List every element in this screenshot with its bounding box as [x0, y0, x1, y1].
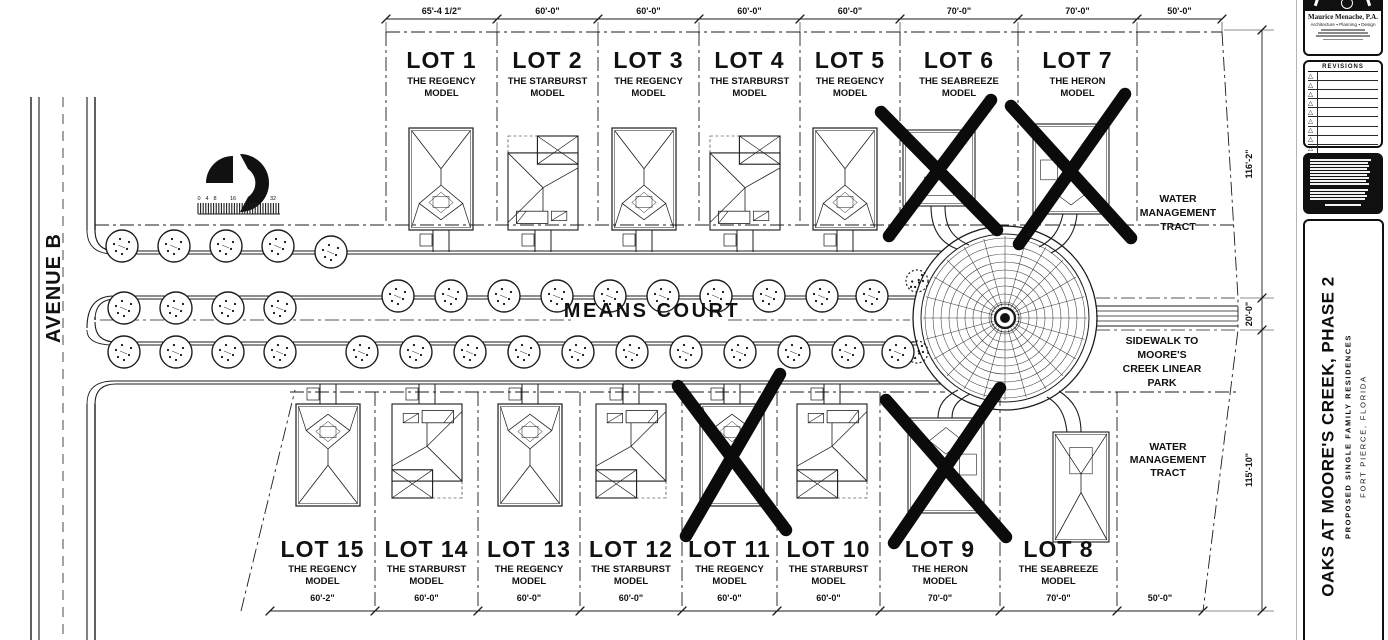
plan-circle: [413, 344, 415, 346]
plan-circle: [225, 253, 227, 255]
plan-circle: [746, 347, 748, 349]
tree: [562, 336, 594, 368]
lot-model: THE REGENCY: [407, 76, 476, 87]
lot-model: THE STARBURST: [387, 564, 467, 575]
dim-label-bottom: 60'-0": [517, 593, 541, 603]
lot-number: LOT 15: [281, 536, 365, 562]
plan-circle: [821, 303, 823, 305]
plan-circle: [173, 253, 175, 255]
sidewalk-label: CREEK LINEAR: [1123, 363, 1202, 375]
water-tract-label: TRACT: [1150, 467, 1186, 479]
plan-circle: [798, 354, 800, 356]
plan-circle: [760, 293, 762, 295]
tree: [264, 336, 296, 368]
lot-model: MODEL: [811, 576, 846, 587]
house-plan: [392, 404, 462, 498]
plan-path: [316, 421, 340, 441]
plan-circle: [739, 359, 741, 361]
plan-circle: [407, 349, 409, 351]
tree: [778, 336, 810, 368]
plan-line: [501, 407, 509, 431]
lot-number: LOT 12: [589, 536, 673, 562]
lot-model: MODEL: [1060, 88, 1095, 99]
revision-delta-icon: △: [1308, 99, 1313, 107]
plan-circle: [361, 359, 363, 361]
plan-line: [797, 446, 832, 466]
plan-circle: [625, 356, 627, 358]
plan-circle: [778, 336, 810, 368]
plan-circle: [395, 288, 397, 290]
plan-line: [797, 484, 817, 498]
plan-circle: [400, 336, 432, 368]
dim-label-bottom: 50'-0": [1148, 593, 1172, 603]
plan-line: [299, 407, 307, 431]
plan-circle: [654, 293, 656, 295]
dim-label-bottom: 60'-0": [816, 593, 840, 603]
plan-path: [419, 185, 463, 220]
plan-circle: [173, 300, 175, 302]
plan-circle: [508, 298, 510, 300]
plan-line: [1081, 493, 1107, 541]
plan-circle: [284, 310, 286, 312]
driveway-walk: [824, 234, 836, 246]
revisions-rows: △△△△△△△△△: [1308, 72, 1378, 154]
plan-line: [816, 203, 824, 227]
plan-circle: [902, 354, 904, 356]
dim-label-top: 50'-0": [1167, 6, 1191, 16]
plan-circle: [115, 250, 117, 252]
plan-line: [808, 413, 823, 422]
water-tract-label: TRACT: [1160, 221, 1196, 233]
plan-circle: [115, 305, 117, 307]
plan-line: [551, 211, 566, 220]
notes-text-line: [1310, 168, 1367, 170]
plan-circle: [775, 291, 777, 293]
tree: [262, 230, 294, 262]
plan-line: [615, 203, 623, 227]
lot-model: THE REGENCY: [495, 564, 564, 575]
bush-dot: [911, 280, 913, 282]
plan-circle: [607, 288, 609, 290]
plan-line: [412, 484, 432, 498]
lot-model: THE STARBURST: [710, 76, 790, 87]
lot-model: MODEL: [409, 576, 444, 587]
plan-circle: [346, 336, 378, 368]
plan-circle: [397, 303, 399, 305]
plan-line: [817, 470, 837, 484]
house-plan: [710, 136, 780, 230]
plan-circle: [277, 300, 279, 302]
plan-circle: [521, 344, 523, 346]
driveway-curve: [1047, 397, 1067, 432]
scale-bar-number: 4: [205, 196, 208, 202]
plan-circle: [889, 349, 891, 351]
plan-circle: [279, 359, 281, 361]
plan-circle: [277, 344, 279, 346]
bush-dot: [921, 345, 923, 347]
plan-circle: [508, 336, 540, 368]
plan-circle: [108, 292, 140, 324]
strike-x-mark: [886, 388, 1006, 543]
cul-de-sac-spoke: [984, 239, 1002, 307]
plan-line: [631, 412, 666, 447]
sidewalk-label: SIDEWALK TO: [1126, 335, 1199, 347]
plan-circle: [467, 344, 469, 346]
architect-card: Maurice Menache, P.A. Architecture ▪ Pla…: [1303, 0, 1383, 56]
tree: [212, 292, 244, 324]
plan-rect: [433, 481, 462, 498]
tree: [264, 292, 296, 324]
driveway-curve: [938, 390, 958, 418]
site-plan-drawing: 65'-4 1/2"60'-0"60'-0"60'-0"60'-0"70'-0"…: [0, 0, 1300, 640]
driveway-walk: [623, 234, 635, 246]
plan-circle: [871, 303, 873, 305]
plan-line: [1055, 434, 1081, 474]
tree: [508, 336, 540, 368]
plan-circle: [669, 291, 671, 293]
plan-circle: [219, 349, 221, 351]
plan-line: [616, 484, 636, 498]
plan-circle: [616, 291, 618, 293]
dim-label-bottom: 70'-0": [1046, 593, 1070, 603]
lot-model: THE REGENCY: [695, 564, 764, 575]
cul-de-sac-spoke: [1008, 330, 1026, 398]
revision-row: △: [1308, 127, 1378, 136]
revision-row: △: [1308, 108, 1378, 117]
house-plan: [296, 404, 360, 506]
plan-circle: [130, 303, 132, 305]
plan-line: [607, 413, 622, 422]
plan-circle: [180, 310, 182, 312]
plan-circle: [865, 300, 867, 302]
plan-circle: [273, 312, 275, 314]
plan-circle: [766, 288, 768, 290]
revision-delta-icon: △: [1308, 117, 1313, 125]
plan-circle: [692, 347, 694, 349]
notes-text-line: [1310, 183, 1369, 185]
plan-circle: [175, 359, 177, 361]
tree: [158, 230, 190, 262]
plan-line: [403, 413, 418, 422]
plan-circle: [731, 349, 733, 351]
plan-line: [616, 470, 636, 484]
plan-circle: [847, 359, 849, 361]
dim-label-bottom: 70'-0": [928, 593, 952, 603]
plan-circle: [391, 300, 393, 302]
plan-line: [350, 407, 358, 431]
plan-line: [745, 168, 780, 188]
lot-model: MODEL: [833, 88, 868, 99]
tree: [882, 336, 914, 368]
plan-line: [537, 136, 557, 150]
tree: [160, 336, 192, 368]
bush-dot: [918, 279, 920, 281]
plan-circle: [219, 305, 221, 307]
plan-circle: [442, 293, 444, 295]
plan-line: [760, 136, 780, 150]
street-name-means-court: MEANS COURT: [564, 300, 740, 322]
tree: [108, 292, 140, 324]
lot-model: MODEL: [424, 88, 459, 99]
plan-circle: [121, 253, 123, 255]
cul-de-sac-spoke: [1011, 328, 1046, 389]
plan-circle: [219, 250, 221, 252]
house-plan: [508, 136, 578, 230]
tree: [616, 336, 648, 368]
cul-de-sac-spoke: [964, 247, 999, 308]
plan-circle: [455, 298, 457, 300]
plan-circle: [169, 356, 171, 358]
lot-number: LOT 4: [714, 47, 784, 73]
plan-circle: [785, 349, 787, 351]
plan-line: [552, 407, 560, 431]
plan-circle: [554, 288, 556, 290]
tree: [346, 336, 378, 368]
revisions-card: REVISIONS △△△△△△△△△: [1303, 60, 1383, 148]
house-plan: [1053, 432, 1109, 542]
tree: [454, 336, 486, 368]
plan-circle: [463, 356, 465, 358]
plan-circle: [234, 303, 236, 305]
revision-delta-icon: △: [1308, 108, 1313, 116]
plan-line: [501, 465, 531, 503]
plan-circle: [571, 356, 573, 358]
water-tract-label: WATER: [1159, 193, 1197, 205]
plan-circle: [488, 280, 520, 312]
plan-circle: [165, 243, 167, 245]
plan-line: [508, 188, 543, 223]
plan-circle: [623, 349, 625, 351]
plan-circle: [115, 349, 117, 351]
lot-model: MODEL: [305, 576, 340, 587]
plan-circle: [225, 300, 227, 302]
lot-model: THE REGENCY: [288, 564, 357, 575]
plan-circle: [221, 312, 223, 314]
plan-rect: [1070, 447, 1092, 473]
notes-text-line: [1310, 162, 1368, 164]
plan-circle: [264, 292, 296, 324]
lot-number: LOT 2: [512, 47, 582, 73]
revision-delta-icon: △: [1308, 144, 1313, 152]
plan-line: [463, 203, 471, 227]
notes-text-line: [1310, 165, 1369, 167]
water-tract-label: MANAGEMENT: [1140, 207, 1217, 219]
plan-circle: [461, 349, 463, 351]
plan-circle: [126, 248, 128, 250]
plan-circle: [269, 243, 271, 245]
plan-line: [392, 446, 427, 466]
tree: [108, 336, 140, 368]
plan-circle: [685, 359, 687, 361]
lot-model: MODEL: [614, 576, 649, 587]
general-notes-card: [1303, 153, 1383, 214]
plan-circle: [404, 291, 406, 293]
plan-circle: [773, 298, 775, 300]
plan-circle: [584, 347, 586, 349]
plan-circle: [324, 256, 326, 258]
project-title: OAKS AT MOORE'S CREEK, PHASE 2: [1319, 276, 1339, 596]
dim-label-bottom: 60'-0": [717, 593, 741, 603]
plan-circle: [121, 344, 123, 346]
scale-bar-number: 32: [270, 196, 276, 202]
plan-circle: [562, 336, 594, 368]
plan-line: [666, 203, 674, 227]
scale-bar-number: 0: [197, 196, 200, 202]
bush-dot: [918, 352, 920, 354]
revision-row: △: [1308, 81, 1378, 90]
plan-circle: [212, 292, 244, 324]
plan-circle: [828, 291, 830, 293]
plan-line: [1055, 493, 1081, 541]
driveway-walk: [610, 388, 622, 400]
plan-circle: [180, 241, 182, 243]
plan-line: [427, 412, 462, 447]
plan-circle: [690, 354, 692, 356]
bush-dot: [922, 280, 924, 282]
plan-circle: [167, 349, 169, 351]
tree: [488, 280, 520, 312]
plan-circle: [128, 354, 130, 356]
dim-label-top: 60'-0": [737, 6, 761, 16]
plan-line: [817, 484, 837, 498]
revision-row: △: [1308, 99, 1378, 108]
driveway-walk: [724, 234, 736, 246]
plan-circle: [277, 253, 279, 255]
revision-row: △: [1308, 90, 1378, 99]
tree: [832, 336, 864, 368]
plan-circle: [638, 347, 640, 349]
plan-circle: [724, 336, 756, 368]
plan-circle: [262, 230, 294, 262]
plan-circle: [435, 280, 467, 312]
cul-de-sac-spoke: [947, 326, 996, 375]
plan-circle: [223, 238, 225, 240]
bush-dot: [918, 281, 920, 283]
tree: [106, 230, 138, 262]
plan-circle: [845, 344, 847, 346]
dim-label-right: 116'-2": [1244, 150, 1254, 179]
plan-circle: [117, 356, 119, 358]
plan-circle: [117, 312, 119, 314]
plan-line: [328, 465, 358, 503]
plan-path: [622, 185, 666, 220]
street-name-avenue-b: AVENUE B: [43, 233, 65, 343]
plan-circle: [221, 356, 223, 358]
strike-x-mark: [678, 374, 786, 536]
strike-x-mark: [1011, 94, 1131, 244]
driveway-walk: [420, 234, 432, 246]
plan-circle: [173, 344, 175, 346]
plan-circle: [897, 359, 899, 361]
architect-name: Maurice Menache, P.A.: [1305, 13, 1381, 21]
notes-text-line: [1310, 195, 1367, 197]
dim-label-top: 60'-0": [838, 6, 862, 16]
bush-dot: [918, 350, 920, 352]
driveway-walk: [307, 388, 319, 400]
plan-circle: [158, 230, 190, 262]
plan-circle: [550, 300, 552, 302]
plan-line: [1081, 434, 1107, 474]
plan-circle: [330, 259, 332, 261]
plan-circle: [167, 305, 169, 307]
plan-line: [441, 131, 471, 169]
plan-circle: [286, 347, 288, 349]
plan-circle: [722, 291, 724, 293]
plan-circle: [575, 344, 577, 346]
house-plan: [797, 404, 867, 498]
tree: [160, 292, 192, 324]
plan-circle: [683, 344, 685, 346]
plan-path: [306, 414, 350, 449]
plan-circle: [577, 359, 579, 361]
driveway-walk: [406, 388, 418, 400]
plan-circle: [878, 291, 880, 293]
plan-circle: [232, 241, 234, 243]
plan-circle: [171, 238, 173, 240]
plan-circle: [569, 349, 571, 351]
plan-rect: [636, 196, 652, 207]
bush-dot: [910, 286, 912, 288]
plan-circle: [169, 312, 171, 314]
plan-path: [833, 192, 857, 212]
plan-line: [644, 131, 674, 169]
notes-text-line: [1325, 204, 1361, 206]
lot-number: LOT 11: [688, 536, 771, 562]
plan-circle: [160, 292, 192, 324]
plan-path: [429, 192, 453, 212]
plan-line: [412, 131, 442, 169]
plan-circle: [762, 300, 764, 302]
plan-circle: [904, 347, 906, 349]
plan-circle: [328, 244, 330, 246]
tree: [753, 280, 785, 312]
plan-circle: [791, 344, 793, 346]
plan-circle: [753, 280, 785, 312]
plan-rect: [838, 481, 867, 498]
plan-circle: [510, 291, 512, 293]
plan-circle: [227, 315, 229, 317]
lot-number: LOT 9: [905, 536, 975, 562]
lot-number: LOT 14: [385, 536, 469, 562]
title-block: OAKS AT MOORE'S CREEK, PHASE 2 PROPOSED …: [1303, 219, 1384, 640]
plan-circle: [744, 354, 746, 356]
plan-circle: [225, 344, 227, 346]
house-plan: [409, 128, 473, 230]
plan-circle: [182, 347, 184, 349]
driveway-curve: [952, 394, 970, 418]
plan-circle: [882, 336, 914, 368]
dim-label-top: 60'-0": [636, 6, 660, 16]
driveway-walk: [711, 388, 723, 400]
tree: [435, 280, 467, 312]
plan-circle: [768, 303, 770, 305]
revision-delta-icon: △: [1308, 81, 1313, 89]
lot-model: MODEL: [631, 88, 666, 99]
plan-rect: [637, 481, 666, 498]
plan-circle: [282, 248, 284, 250]
dim-label-top: 60'-0": [535, 6, 559, 16]
plan-circle: [368, 347, 370, 349]
plan-rect: [433, 196, 449, 207]
lot-number: LOT 13: [487, 536, 571, 562]
plan-circle: [852, 354, 854, 356]
plan-line: [845, 131, 875, 169]
plan-circle: [813, 293, 815, 295]
plan-circle: [178, 248, 180, 250]
plan-path: [518, 421, 542, 441]
lot-number: LOT 8: [1023, 536, 1093, 562]
plan-circle: [128, 241, 130, 243]
